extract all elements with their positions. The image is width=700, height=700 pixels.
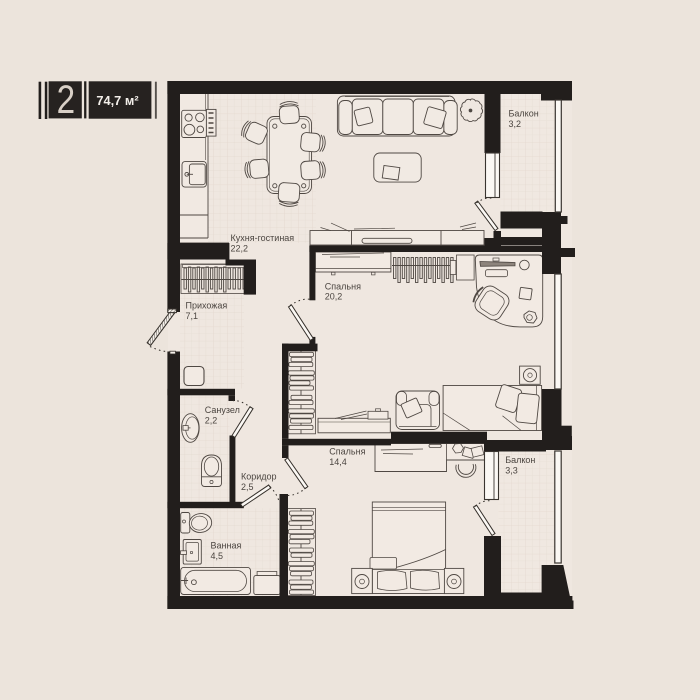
svg-text:2: 2 [57,78,76,122]
svg-text:7,1: 7,1 [186,311,199,321]
svg-text:Спальня: Спальня [329,447,365,457]
svg-text:4,5: 4,5 [211,551,224,561]
svg-text:2,5: 2,5 [241,482,254,492]
svg-text:74,7 м²: 74,7 м² [96,93,138,108]
svg-text:Спальня: Спальня [325,281,361,291]
svg-text:Балкон: Балкон [509,109,539,119]
svg-text:14,4: 14,4 [329,457,347,467]
svg-text:Балкон: Балкон [505,455,535,465]
svg-text:20,2: 20,2 [325,292,343,302]
svg-text:3,3: 3,3 [505,466,518,476]
svg-text:Кухня-гостиная: Кухня-гостиная [231,233,295,243]
svg-text:22,2: 22,2 [231,243,249,253]
svg-text:Прихожая: Прихожая [186,301,228,311]
svg-text:3,2: 3,2 [509,119,522,129]
svg-text:2,2: 2,2 [205,415,218,425]
svg-text:Коридор: Коридор [241,472,277,482]
svg-text:Ванная: Ванная [211,541,242,551]
svg-text:Санузел: Санузел [205,405,240,415]
